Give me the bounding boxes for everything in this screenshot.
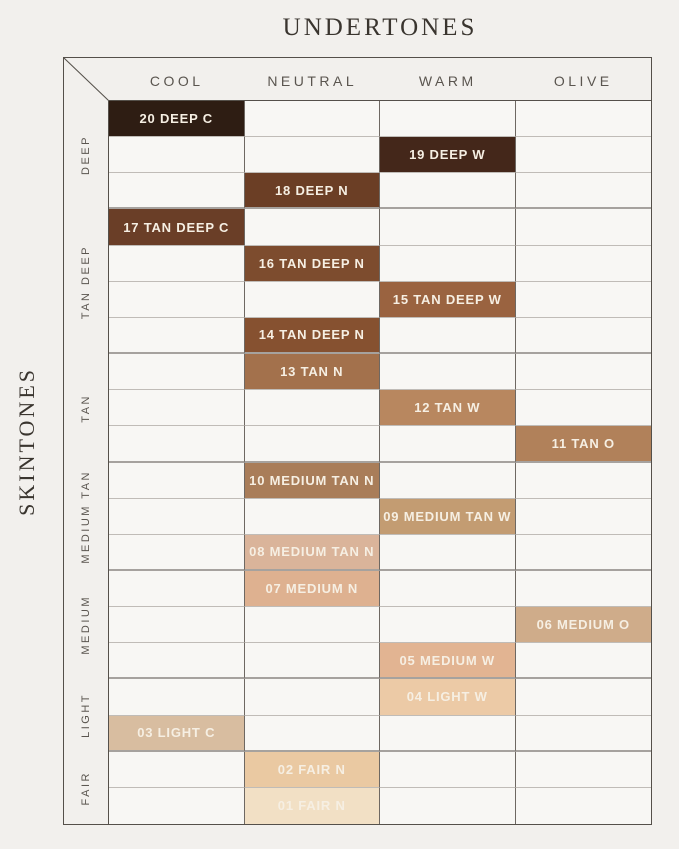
row-group-label-text: LIGHT bbox=[80, 693, 92, 738]
empty-cell bbox=[516, 390, 652, 426]
row-group-label-text: TAN bbox=[80, 394, 92, 423]
header-underline bbox=[109, 100, 651, 101]
diagonal-divider-line bbox=[64, 58, 109, 101]
empty-cell bbox=[380, 716, 516, 752]
empty-cell bbox=[516, 571, 652, 607]
empty-cell bbox=[245, 643, 381, 679]
empty-cell bbox=[516, 643, 652, 679]
undertones-axis-title: UNDERTONES bbox=[63, 14, 652, 42]
empty-cell bbox=[516, 463, 652, 499]
shade-cell-19-deep-w: 19 DEEP W bbox=[380, 137, 516, 173]
empty-cell bbox=[109, 752, 245, 788]
shade-cell-07-medium-n: 07 MEDIUM N bbox=[245, 571, 381, 607]
shade-cell-08-medium-tan-n: 08 MEDIUM TAN N bbox=[245, 535, 381, 571]
empty-cell bbox=[109, 426, 245, 462]
shade-label: 15 TAN DEEP W bbox=[393, 292, 502, 307]
shade-label: 06 MEDIUM O bbox=[537, 617, 630, 632]
shade-cell-20-deep-c: 20 DEEP C bbox=[109, 101, 245, 137]
empty-cell bbox=[380, 571, 516, 607]
shade-cell-12-tan-w: 12 TAN W bbox=[380, 390, 516, 426]
empty-cell bbox=[245, 209, 381, 245]
empty-cell bbox=[380, 209, 516, 245]
shade-label: 09 MEDIUM TAN W bbox=[383, 509, 511, 524]
shade-cell-17-tan-deep-c: 17 TAN DEEP C bbox=[109, 209, 245, 245]
row-group-label-light: LIGHT bbox=[64, 679, 109, 751]
empty-cell bbox=[109, 318, 245, 354]
empty-cell bbox=[109, 137, 245, 173]
empty-cell bbox=[380, 535, 516, 571]
empty-cell bbox=[109, 571, 245, 607]
column-header-neutral: NEUTRAL bbox=[245, 58, 381, 101]
empty-cell bbox=[516, 354, 652, 390]
empty-cell bbox=[516, 788, 652, 824]
shade-cell-16-tan-deep-n: 16 TAN DEEP N bbox=[245, 246, 381, 282]
shade-label: 10 MEDIUM TAN N bbox=[249, 473, 374, 488]
empty-cell bbox=[516, 535, 652, 571]
shade-label: 19 DEEP W bbox=[409, 147, 485, 162]
shade-cell-14-tan-deep-n: 14 TAN DEEP N bbox=[245, 318, 381, 354]
row-group-label-text: TAN DEEP bbox=[80, 245, 92, 319]
shade-cell-05-medium-w: 05 MEDIUM W bbox=[380, 643, 516, 679]
empty-cell bbox=[380, 788, 516, 824]
shade-cell-11-tan-o: 11 TAN O bbox=[516, 426, 652, 462]
empty-cell bbox=[109, 607, 245, 643]
empty-cell bbox=[380, 173, 516, 209]
empty-cell bbox=[245, 390, 381, 426]
empty-cell bbox=[516, 101, 652, 137]
empty-cell bbox=[109, 499, 245, 535]
shade-cell-04-light-w: 04 LIGHT W bbox=[380, 679, 516, 715]
row-group-label-text: MEDIUM TAN bbox=[80, 470, 92, 564]
empty-cell bbox=[109, 535, 245, 571]
empty-cell bbox=[380, 354, 516, 390]
empty-cell bbox=[245, 137, 381, 173]
empty-cell bbox=[109, 282, 245, 318]
empty-cell bbox=[380, 752, 516, 788]
empty-cell bbox=[516, 246, 652, 282]
empty-cell bbox=[516, 318, 652, 354]
undertone-header-row: COOL NEUTRAL WARM OLIVE bbox=[64, 58, 651, 101]
empty-cell bbox=[109, 788, 245, 824]
empty-cell bbox=[380, 607, 516, 643]
row-group-label-tan-deep: TAN DEEP bbox=[64, 209, 109, 354]
shade-cell-18-deep-n: 18 DEEP N bbox=[245, 173, 381, 209]
row-group-label-medium-tan: MEDIUM TAN bbox=[64, 463, 109, 571]
skintones-axis-title: SKINTONES bbox=[14, 367, 40, 516]
shade-cell-13-tan-n: 13 TAN N bbox=[245, 354, 381, 390]
shade-label: 01 FAIR N bbox=[278, 798, 346, 813]
shade-label: 07 MEDIUM N bbox=[265, 581, 358, 596]
empty-cell bbox=[245, 716, 381, 752]
shade-label: 11 TAN O bbox=[552, 436, 615, 451]
empty-cell bbox=[245, 101, 381, 137]
row-group-label-tan: TAN bbox=[64, 354, 109, 462]
row-group-label-fair: FAIR bbox=[64, 752, 109, 824]
shade-label: 08 MEDIUM TAN N bbox=[249, 544, 374, 559]
row-group-label-text: FAIR bbox=[80, 771, 92, 805]
empty-cell bbox=[380, 318, 516, 354]
empty-cell bbox=[109, 463, 245, 499]
shade-cell-06-medium-o: 06 MEDIUM O bbox=[516, 607, 652, 643]
shade-label: 12 TAN W bbox=[414, 400, 480, 415]
empty-cell bbox=[516, 137, 652, 173]
empty-cell bbox=[109, 173, 245, 209]
shade-chart-page: UNDERTONES SKINTONES COOL NEUTRAL WARM O… bbox=[0, 0, 679, 849]
shade-label: 02 FAIR N bbox=[278, 762, 346, 777]
empty-cell bbox=[109, 679, 245, 715]
empty-cell bbox=[516, 752, 652, 788]
row-group-label-deep: DEEP bbox=[64, 101, 109, 209]
shade-label: 05 MEDIUM W bbox=[400, 653, 495, 668]
empty-cell bbox=[380, 101, 516, 137]
shade-label: 18 DEEP N bbox=[275, 183, 348, 198]
empty-cell bbox=[245, 607, 381, 643]
shade-label: 20 DEEP C bbox=[140, 111, 213, 126]
shade-cell-01-fair-n: 01 FAIR N bbox=[245, 788, 381, 824]
empty-cell bbox=[516, 173, 652, 209]
empty-cell bbox=[516, 716, 652, 752]
column-header-warm: WARM bbox=[380, 58, 516, 101]
shade-grid-body: DEEPTAN DEEPTANMEDIUM TANMEDIUMLIGHTFAIR… bbox=[64, 101, 651, 824]
empty-cell bbox=[109, 246, 245, 282]
empty-cell bbox=[245, 499, 381, 535]
shade-matrix-table: COOL NEUTRAL WARM OLIVE DEEPTAN DEEPTANM… bbox=[63, 57, 652, 825]
shade-cell-03-light-c: 03 LIGHT C bbox=[109, 716, 245, 752]
empty-cell bbox=[380, 426, 516, 462]
empty-cell bbox=[109, 354, 245, 390]
empty-cell bbox=[516, 282, 652, 318]
row-group-label-medium: MEDIUM bbox=[64, 571, 109, 679]
empty-cell bbox=[516, 499, 652, 535]
row-group-label-text: DEEP bbox=[80, 135, 92, 175]
shade-cell-09-medium-tan-w: 09 MEDIUM TAN W bbox=[380, 499, 516, 535]
corner-cell bbox=[64, 58, 109, 101]
empty-cell bbox=[109, 390, 245, 426]
shade-label: 13 TAN N bbox=[280, 364, 343, 379]
empty-cell bbox=[380, 246, 516, 282]
empty-cell bbox=[516, 679, 652, 715]
shade-label: 03 LIGHT C bbox=[137, 725, 215, 740]
shade-label: 16 TAN DEEP N bbox=[259, 256, 365, 271]
column-header-cool: COOL bbox=[109, 58, 245, 101]
column-header-olive: OLIVE bbox=[516, 58, 652, 101]
empty-cell bbox=[245, 282, 381, 318]
empty-cell bbox=[245, 426, 381, 462]
empty-cell bbox=[380, 463, 516, 499]
skintones-axis-title-wrap: SKINTONES bbox=[6, 57, 48, 825]
shade-label: 14 TAN DEEP N bbox=[259, 327, 365, 342]
shade-label: 17 TAN DEEP C bbox=[123, 220, 229, 235]
row-group-label-text: MEDIUM bbox=[80, 595, 92, 655]
shade-cell-15-tan-deep-w: 15 TAN DEEP W bbox=[380, 282, 516, 318]
shade-cell-10-medium-tan-n: 10 MEDIUM TAN N bbox=[245, 463, 381, 499]
empty-cell bbox=[109, 643, 245, 679]
empty-cell bbox=[245, 679, 381, 715]
shade-cell-02-fair-n: 02 FAIR N bbox=[245, 752, 381, 788]
shade-label: 04 LIGHT W bbox=[407, 689, 488, 704]
empty-cell bbox=[516, 209, 652, 245]
